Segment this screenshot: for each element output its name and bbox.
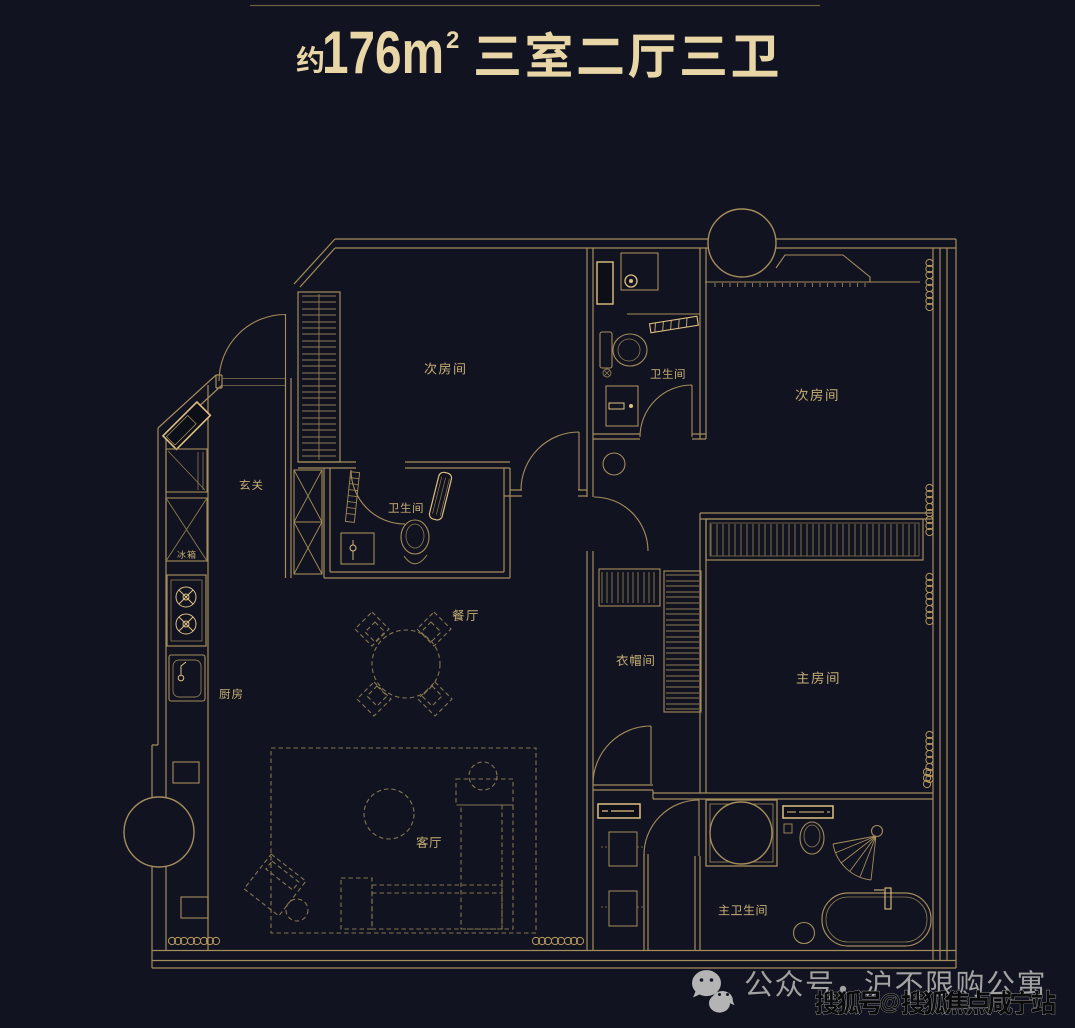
svg-text:@: @ [879, 990, 900, 1015]
svg-text:176m: 176m [322, 19, 444, 86]
svg-text:2: 2 [446, 27, 459, 54]
